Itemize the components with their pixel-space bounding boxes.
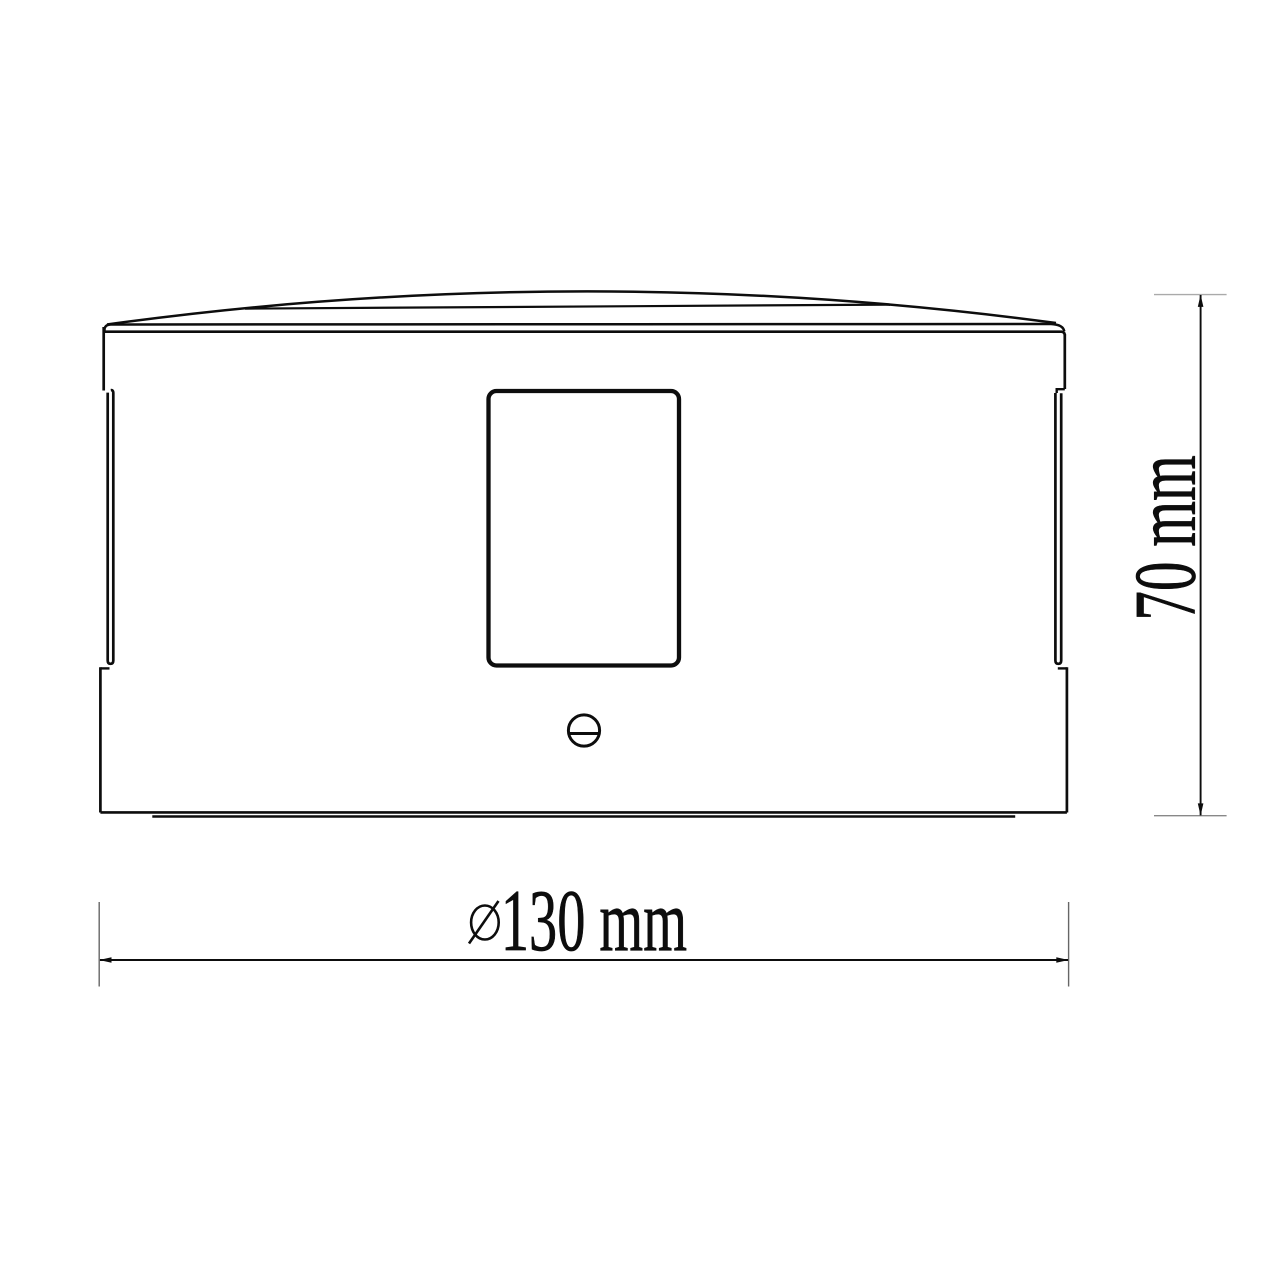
svg-text:70 mm: 70 mm — [1117, 455, 1215, 620]
svg-text:130 mm: 130 mm — [501, 871, 687, 969]
